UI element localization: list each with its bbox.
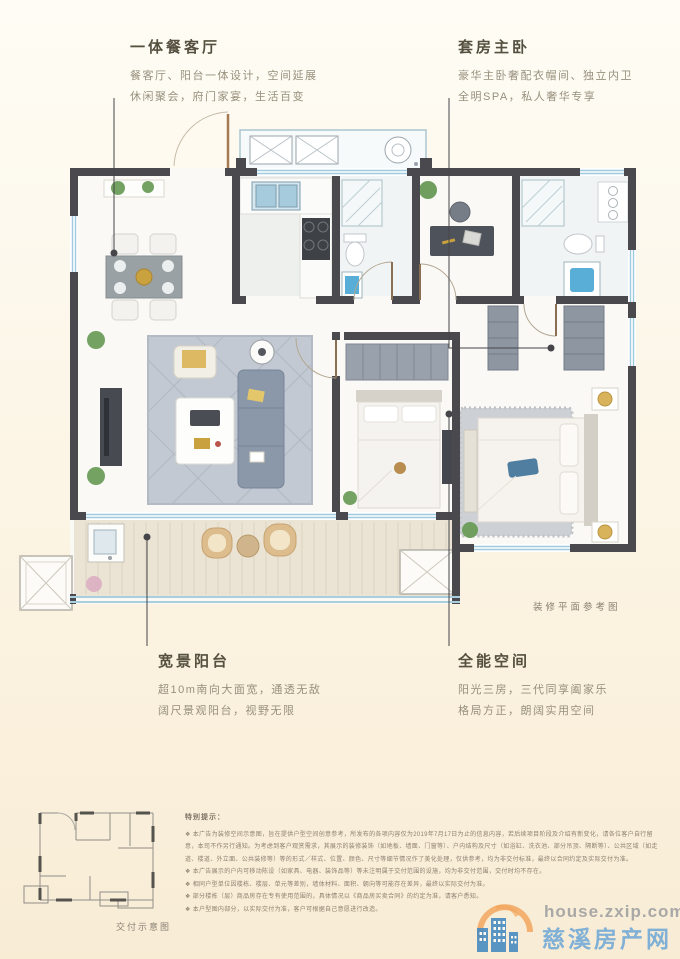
balcony-deck [74, 520, 452, 598]
diamond-bullet-icon: ❖ [185, 894, 191, 900]
sofa [238, 370, 284, 488]
dining-chair [150, 234, 176, 254]
delivery-schematic: 交付示意图 [18, 788, 173, 938]
entry-door-arc [174, 112, 228, 166]
centerpiece [136, 269, 152, 285]
disclaimer-item: ❖本广告展示的户内可移动陈设（如家具、电器、装饰品等）等未注明属于交付范围的设施… [185, 866, 665, 879]
annotation-title: 套房主卧 [458, 36, 633, 57]
annotation-line: 阳光三房，三代同享阖家乐 [458, 680, 608, 701]
plant-icon [419, 181, 437, 199]
annotation-line: 阔尺景观阳台，视野无限 [158, 701, 321, 722]
tv [104, 398, 109, 456]
site-watermark: house.zxip.com 慈溪房产网 [470, 892, 680, 956]
diamond-bullet-icon: ❖ [185, 907, 191, 913]
annotation-line: 豪华主卧奢配衣帽间、独立内卫 [458, 66, 633, 87]
plant-icon [86, 576, 102, 592]
watermark-domain: house.zxip.com [544, 902, 680, 922]
desk [430, 226, 494, 256]
disclaimer-item: ❖本广告为装修空间示意图，旨在提供户型空间创意参考，所发布的各项内容仅为2019… [185, 829, 665, 867]
wall-accents [40, 813, 153, 900]
disclaimer-title: 特别提示： [185, 812, 665, 825]
shower [342, 180, 382, 226]
toilet [346, 242, 364, 266]
bed-headboard [356, 390, 442, 402]
plant-icon [462, 522, 478, 538]
toilet [564, 234, 592, 254]
plant-icon [87, 331, 105, 349]
desk-chair [450, 202, 470, 222]
stove [302, 218, 330, 260]
annotation-line: 餐客厅、阳台一体设计，空间延展 [130, 66, 318, 87]
page-background: { "annotations": { "dining_living": { "t… [0, 0, 680, 959]
teddy-bear [394, 462, 406, 474]
bed-bench [464, 430, 477, 512]
second-bedroom [343, 344, 452, 508]
washer-icon [385, 137, 411, 163]
plant-icon [111, 181, 125, 195]
annotation-wide-balcony: 宽景阳台 超10m南向大面宽，通透无敌 阔尺景观阳台，视野无限 [158, 650, 321, 722]
annotation-title: 宽景阳台 [158, 650, 321, 671]
diamond-bullet-icon: ❖ [185, 832, 191, 838]
lamp-icon [598, 392, 612, 406]
plant-icon [87, 467, 105, 485]
watermark-site-name: 慈溪房产网 [542, 920, 672, 954]
utility-balcony [240, 130, 426, 170]
dining-chair [112, 300, 138, 320]
disclaimer-item: ❖相同户型单位因楼栋、楼层、单元等差别，墙体材料、面积、朝向等可能存在差异，最终… [185, 879, 665, 892]
tv-console [100, 388, 122, 466]
annotation-line: 超10m南向大面宽，通透无敌 [158, 680, 321, 701]
pouf [237, 535, 259, 557]
lamp-icon [598, 525, 612, 539]
plant-icon [343, 491, 357, 505]
site-logo-icon [470, 892, 540, 956]
plant-icon [142, 181, 154, 193]
annotation-all-purpose: 全能空间 阳光三房，三代同享阖家乐 格局方正，朗阔实用空间 [458, 650, 608, 722]
coffee-table [176, 398, 234, 464]
diamond-bullet-icon: ❖ [185, 882, 191, 888]
annotation-line: 格局方正，朗阔实用空间 [458, 701, 608, 722]
floor-plan: 装修平面参考图 [0, 90, 680, 650]
plan-caption: 装修平面参考图 [533, 601, 621, 613]
annotation-title: 一体餐客厅 [130, 36, 318, 57]
delivery-caption: 交付示意图 [116, 921, 171, 932]
dining-chair [150, 300, 176, 320]
bed-headboard [584, 414, 598, 526]
annotation-title: 全能空间 [458, 650, 608, 671]
dresser [442, 430, 452, 484]
diamond-bullet-icon: ❖ [185, 869, 191, 875]
